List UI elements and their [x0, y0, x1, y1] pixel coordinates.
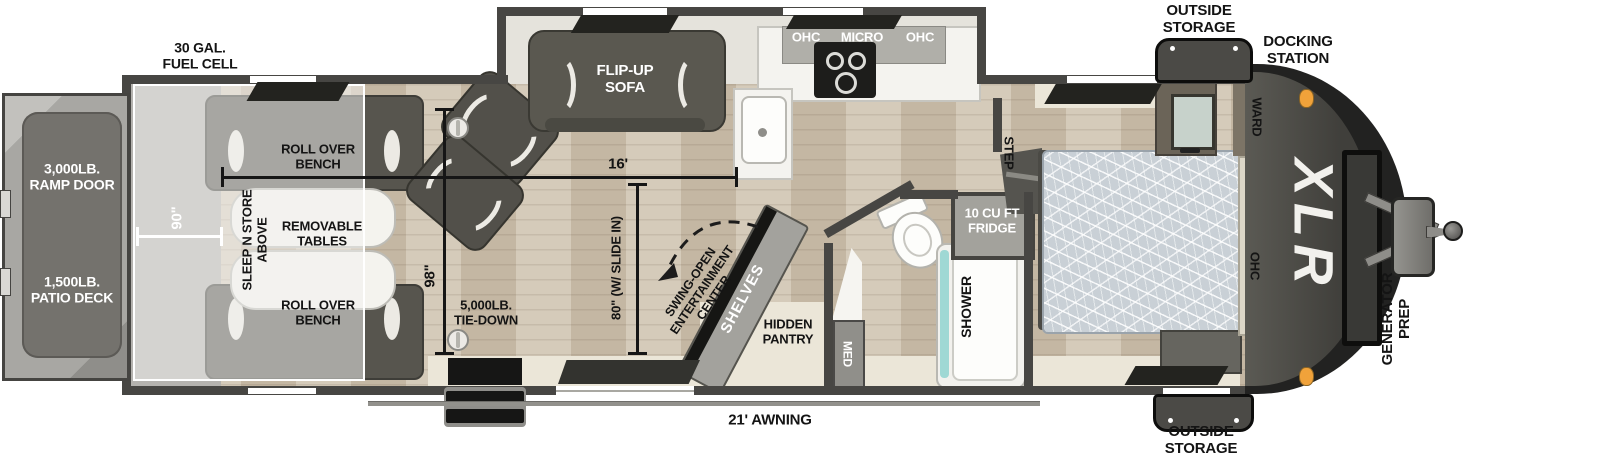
- step-label: STEP: [1001, 136, 1016, 169]
- window-garage-bottom: [248, 388, 316, 394]
- generator-prep-compartment: [1342, 150, 1382, 346]
- dim-16-tick-left: [221, 167, 224, 187]
- ohc-right-label: OHC: [906, 31, 934, 46]
- roll-over-bench-bottom-label: ROLL OVER BENCH: [281, 298, 355, 327]
- entry-door-mat: [558, 360, 700, 384]
- wall-slide-right: [977, 7, 986, 84]
- sink-faucet: [758, 128, 767, 137]
- wall-slide-left: [497, 7, 506, 84]
- flip-up-sofa-label: FLIP-UP SOFA: [597, 63, 654, 97]
- dim-16-line: [222, 176, 737, 179]
- dim-16-label: 16': [608, 157, 628, 174]
- burner-2: [848, 52, 866, 70]
- storage-bottom-screw-right: [1234, 418, 1239, 423]
- skylight-garage: [247, 82, 350, 101]
- awning-line: [368, 401, 1040, 406]
- dim-80-tick-top: [628, 183, 647, 186]
- ward-label: WARD: [1249, 98, 1264, 137]
- outside-storage-box-top: [1155, 38, 1253, 83]
- ramp-hinge-notch-2: [0, 268, 11, 296]
- dim-80-line: [636, 184, 639, 355]
- marker-light-top: [1299, 89, 1314, 108]
- ramp-door-panel: [22, 112, 122, 358]
- shower: [936, 243, 1026, 389]
- outside-storage-top-label: OUTSIDE STORAGE: [1163, 3, 1236, 37]
- roll-over-bench-top-label: ROLL OVER BENCH: [281, 142, 355, 171]
- entry-step-tread-2: [446, 409, 524, 423]
- bench-bottom-pad-right: [384, 298, 400, 340]
- awning-label: 21' AWNING: [728, 413, 812, 430]
- anchor-pin: [456, 332, 460, 348]
- wall-bath-horizontal: [900, 190, 958, 199]
- removable-tables-label: REMOVABLE TABLES: [282, 219, 362, 248]
- window-shade-kitchen: [786, 15, 902, 29]
- ramp-hinge-notch-1: [0, 190, 11, 218]
- wall-pantry: [824, 243, 833, 391]
- tie-down-anchor-front: [447, 117, 469, 139]
- dim-90-tick-right: [220, 227, 223, 246]
- sofa-base: [545, 118, 705, 132]
- bench-top-pad-right: [384, 130, 400, 172]
- sofa-arm-right: [678, 56, 708, 114]
- fridge-label: 10 CU FT FRIDGE: [965, 206, 1020, 235]
- anchor-pin: [456, 120, 460, 136]
- sleep-n-store-label: SLEEP N STORE ABOVE: [240, 190, 269, 291]
- docking-station-label: DOCKING STATION: [1263, 34, 1332, 68]
- patio-deck-label: 1,500LB. PATIO DECK: [31, 274, 113, 305]
- ohc-left-label: OHC: [792, 31, 820, 46]
- wardrobe-handle: [1180, 148, 1200, 153]
- window-shade-bedroom-bottom: [1125, 366, 1229, 385]
- storage-top-screw-right: [1233, 46, 1238, 51]
- entry-step-landing: [448, 358, 522, 385]
- outside-storage-bottom-label: OUTSIDE STORAGE: [1165, 424, 1238, 454]
- dim-90-label: 90": [170, 206, 187, 229]
- dim-98-tick-bottom: [435, 352, 454, 355]
- entry-door-track: [556, 390, 694, 392]
- dim-90-line: [138, 235, 222, 238]
- step-tread-line: [1006, 172, 1040, 182]
- dim-98-line: [443, 110, 446, 354]
- generator-prep-label: GENERATOR PREP: [1380, 273, 1414, 366]
- window-shade-sofa: [571, 15, 679, 33]
- hitch-coupler-ball: [1443, 221, 1463, 241]
- fuel-cell-label: 30 GAL. FUEL CELL: [163, 40, 238, 71]
- window-sofa-slide: [583, 8, 667, 15]
- shower-glass: [940, 250, 949, 378]
- dim-90-tick-left: [136, 227, 139, 246]
- storage-top-screw-left: [1170, 46, 1175, 51]
- wall-bedroom-left: [1024, 192, 1033, 386]
- micro-label: MICRO: [841, 31, 883, 46]
- dim-80-label: 80" (W/ SLIDE IN): [610, 216, 625, 320]
- marker-light-bottom: [1299, 367, 1314, 386]
- bedroom-ohc-label: OHC: [1247, 252, 1262, 280]
- hidden-pantry-label: HIDDEN PANTRY: [763, 317, 814, 346]
- xlr-logo: XLR: [1282, 159, 1345, 292]
- bed-mattress: [1042, 150, 1244, 334]
- ramp-door-label: 3,000LB. RAMP DOOR: [29, 161, 114, 192]
- med-label: MED: [840, 341, 853, 367]
- dim-80-tick-bottom: [628, 352, 647, 355]
- shower-label: SHOWER: [959, 276, 975, 338]
- window-bedroom-top: [1067, 76, 1157, 83]
- burner-1: [826, 52, 844, 70]
- tie-down-label: 5,000LB. TIE-DOWN: [454, 298, 518, 327]
- floorplan-canvas: SHELVES: [0, 0, 1600, 454]
- sofa-arm-left: [546, 56, 576, 114]
- wall-slide-top: [497, 7, 986, 16]
- tie-down-anchor-rear: [447, 329, 469, 351]
- dim-98-tick-top: [435, 108, 454, 111]
- burner-3: [835, 72, 857, 94]
- dim-98-label: 98": [423, 264, 440, 287]
- window-shade-bedroom-top: [1044, 84, 1162, 104]
- dim-16-tick-right: [735, 167, 738, 187]
- window-kitchen-slide: [783, 8, 863, 15]
- wardrobe-tv: [1171, 94, 1215, 150]
